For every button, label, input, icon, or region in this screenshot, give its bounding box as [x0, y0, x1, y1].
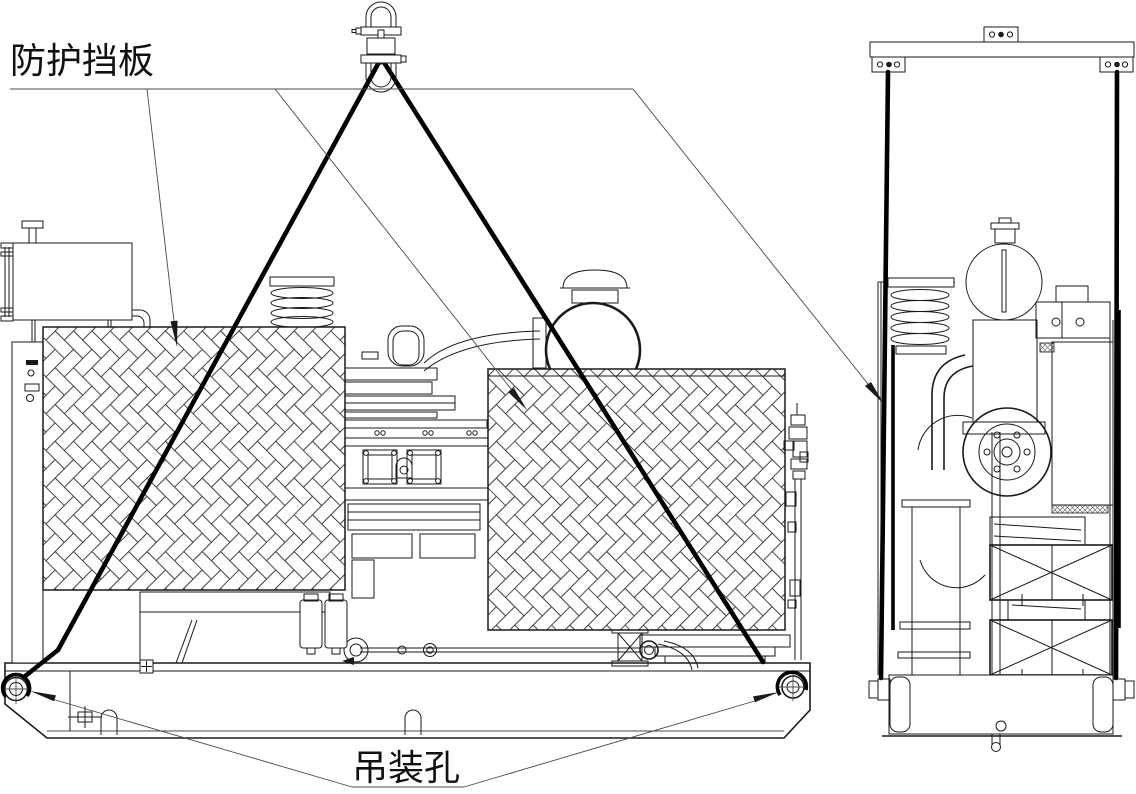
genset-lifting-diagram: 防护挡板 吊装孔: [0, 0, 1136, 794]
machine-body-end: [878, 282, 1113, 675]
shackle-top-bow: [366, 2, 396, 29]
base-skid-end: [869, 675, 1134, 736]
genset-end-view: [869, 27, 1134, 752]
sling-end-view-right: [1116, 72, 1117, 678]
radiator-stack: [990, 342, 1113, 681]
guard-plate-panel-right: [488, 369, 785, 630]
guard-bars-end: [893, 310, 1119, 630]
shackle-assembly: [352, 2, 406, 92]
subframe-right: [640, 635, 790, 663]
intake-bellows: [270, 277, 334, 328]
leader-arrow-eye-left: [30, 691, 352, 787]
leader-arrow-panel-left: [147, 89, 178, 347]
base-bolt-mark: [68, 706, 102, 728]
spreader-bar: [870, 27, 1134, 72]
label-guard-plate: 防护挡板: [10, 40, 154, 81]
base-skid-side: [1, 660, 810, 738]
base-plus-marker: [140, 660, 153, 673]
technical-drawing-page: 防护挡板 吊装孔: [0, 0, 1136, 794]
leader-arrow-eye-right: [464, 692, 779, 787]
round-tank: [963, 218, 1045, 434]
flywheel-pulleys: [918, 408, 1051, 588]
master-link-block: [367, 38, 395, 54]
guard-plate-panel-left: [43, 327, 345, 590]
bellows-end: [888, 278, 954, 354]
leader-arrow-end-view-guard: [633, 89, 884, 404]
shackle-lower-pin: [361, 55, 401, 63]
control-cabinet: [12, 342, 43, 663]
expansion-tank: [1, 221, 150, 342]
fuel-standpipe: [784, 403, 808, 660]
genset-side-view: [1, 221, 810, 738]
label-lifting-hole: 吊装孔: [352, 747, 460, 788]
sling-end-view-left: [881, 72, 888, 678]
